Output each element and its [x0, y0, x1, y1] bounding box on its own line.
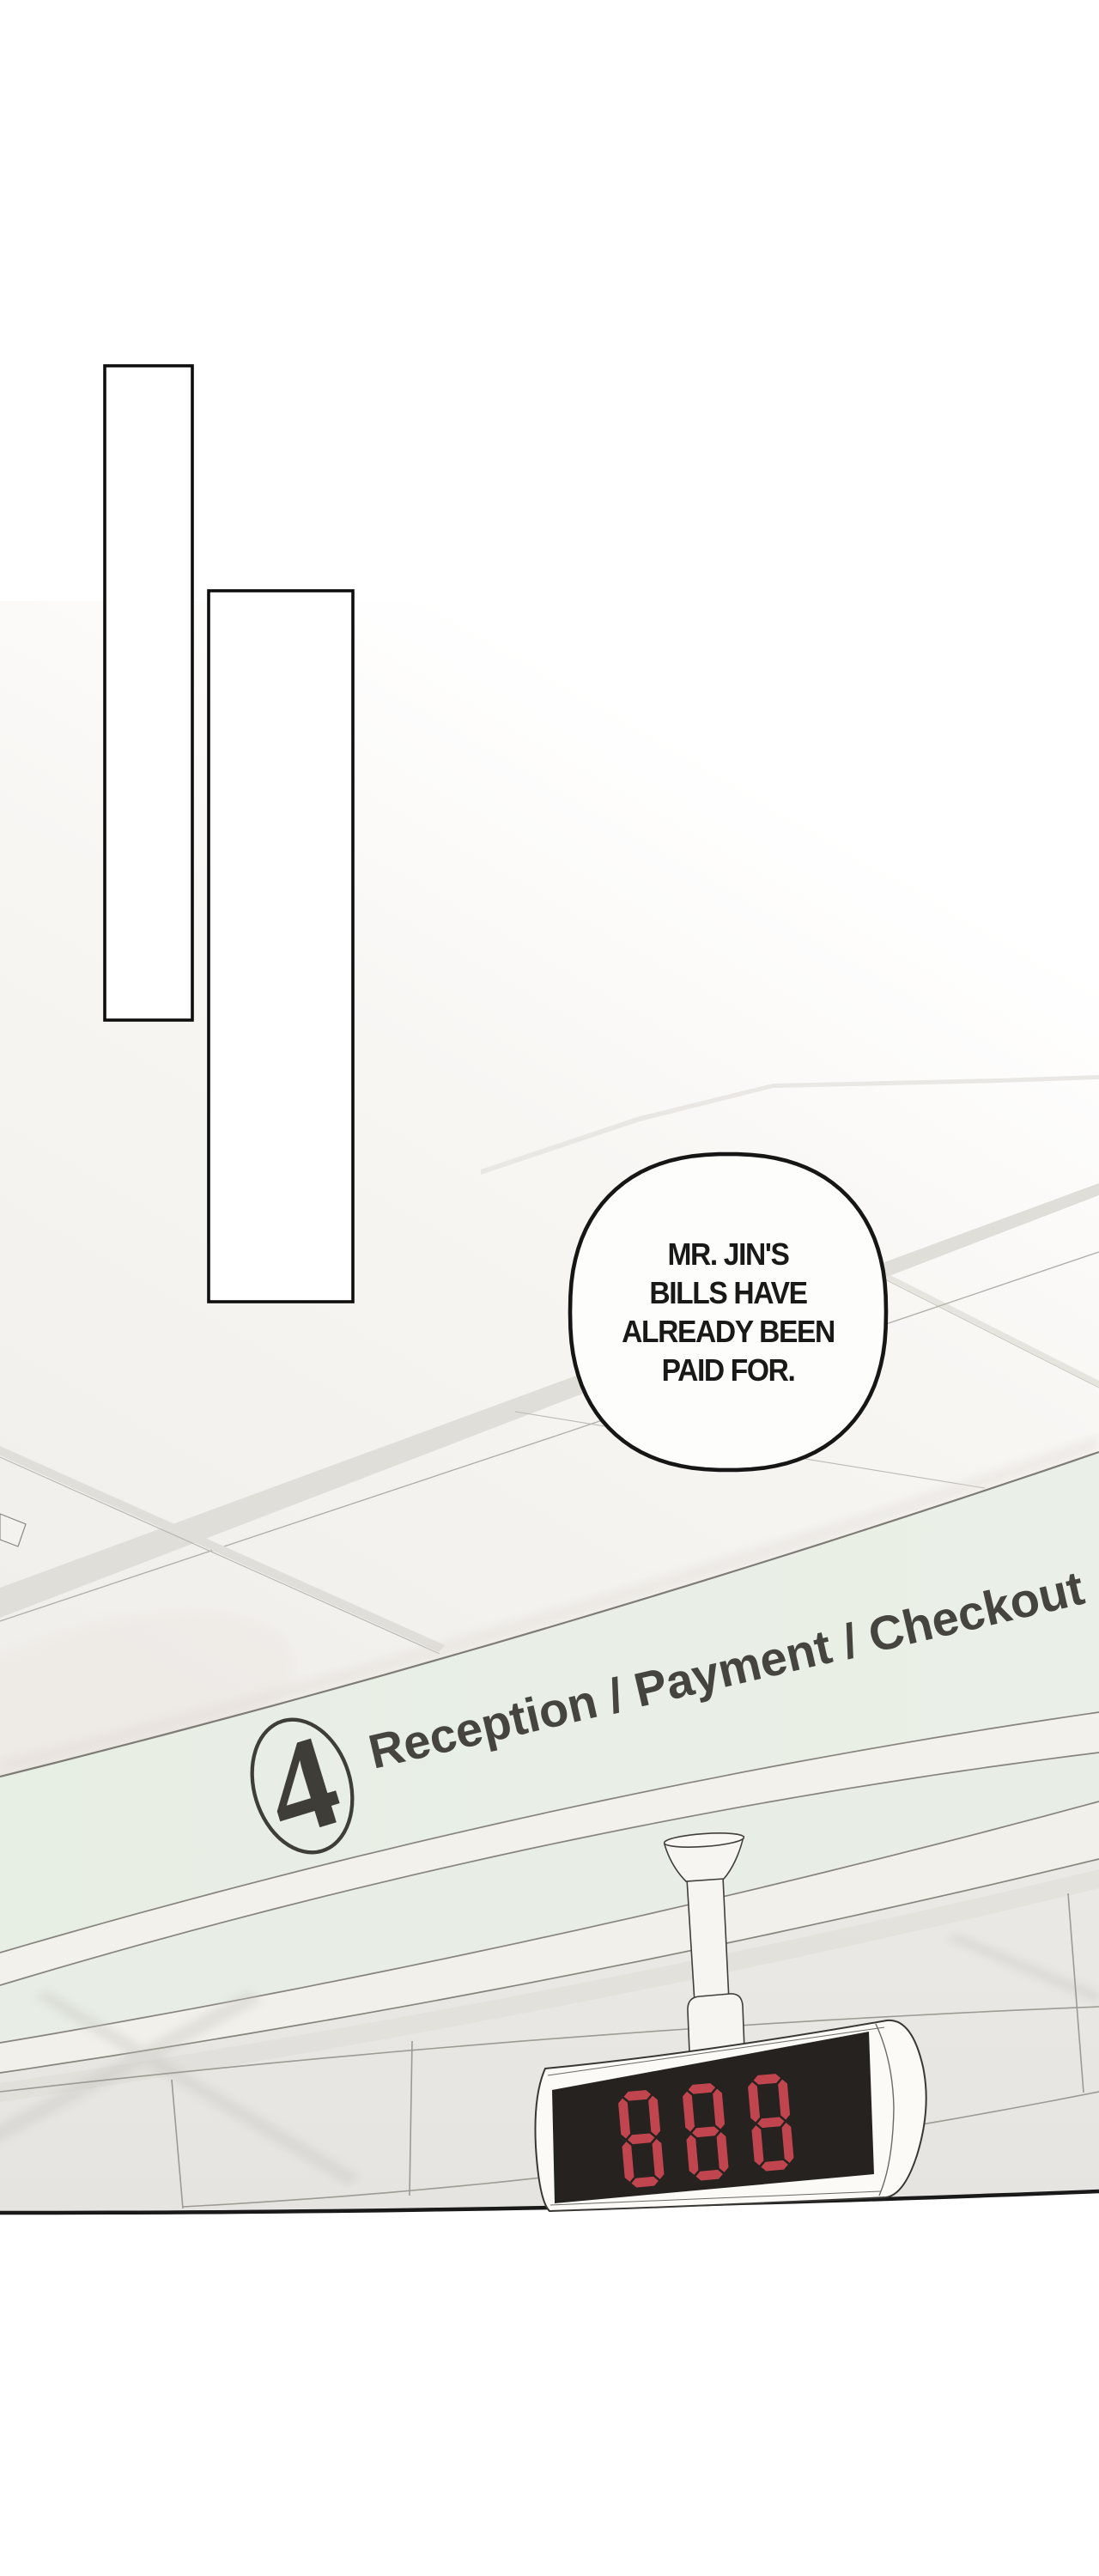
- svg-text:PAID FOR.: PAID FOR.: [662, 1353, 795, 1388]
- svg-text:MR. JIN'S: MR. JIN'S: [667, 1237, 789, 1273]
- svg-text:ALREADY BEEN: ALREADY BEEN: [622, 1315, 835, 1350]
- svg-text:BILLS HAVE: BILLS HAVE: [649, 1276, 807, 1311]
